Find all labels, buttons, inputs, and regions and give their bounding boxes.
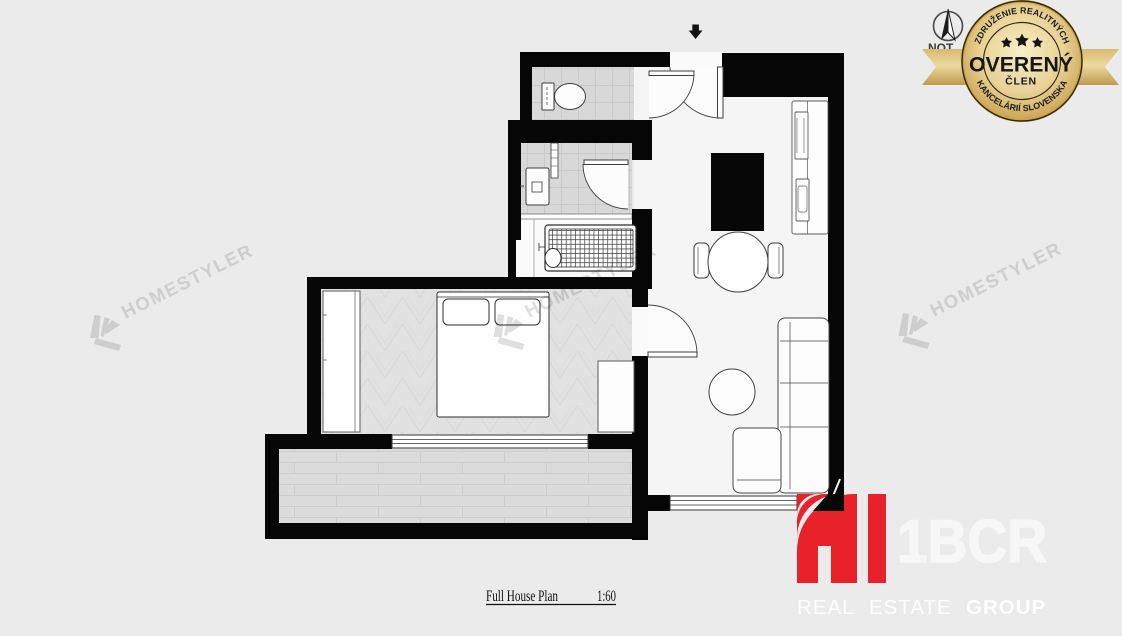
svg-text:OVERENÝ: OVERENÝ <box>969 52 1073 77</box>
svg-text:1:60: 1:60 <box>597 588 616 605</box>
svg-text:ESTATE: ESTATE <box>869 596 952 619</box>
svg-text:GROUP: GROUP <box>966 596 1046 619</box>
svg-text:1BCR: 1BCR <box>897 508 1047 575</box>
svg-text:ČLEN: ČLEN <box>1005 75 1037 88</box>
svg-text:Full House Plan: Full House Plan <box>486 588 558 605</box>
svg-text:REAL: REAL <box>797 596 855 619</box>
